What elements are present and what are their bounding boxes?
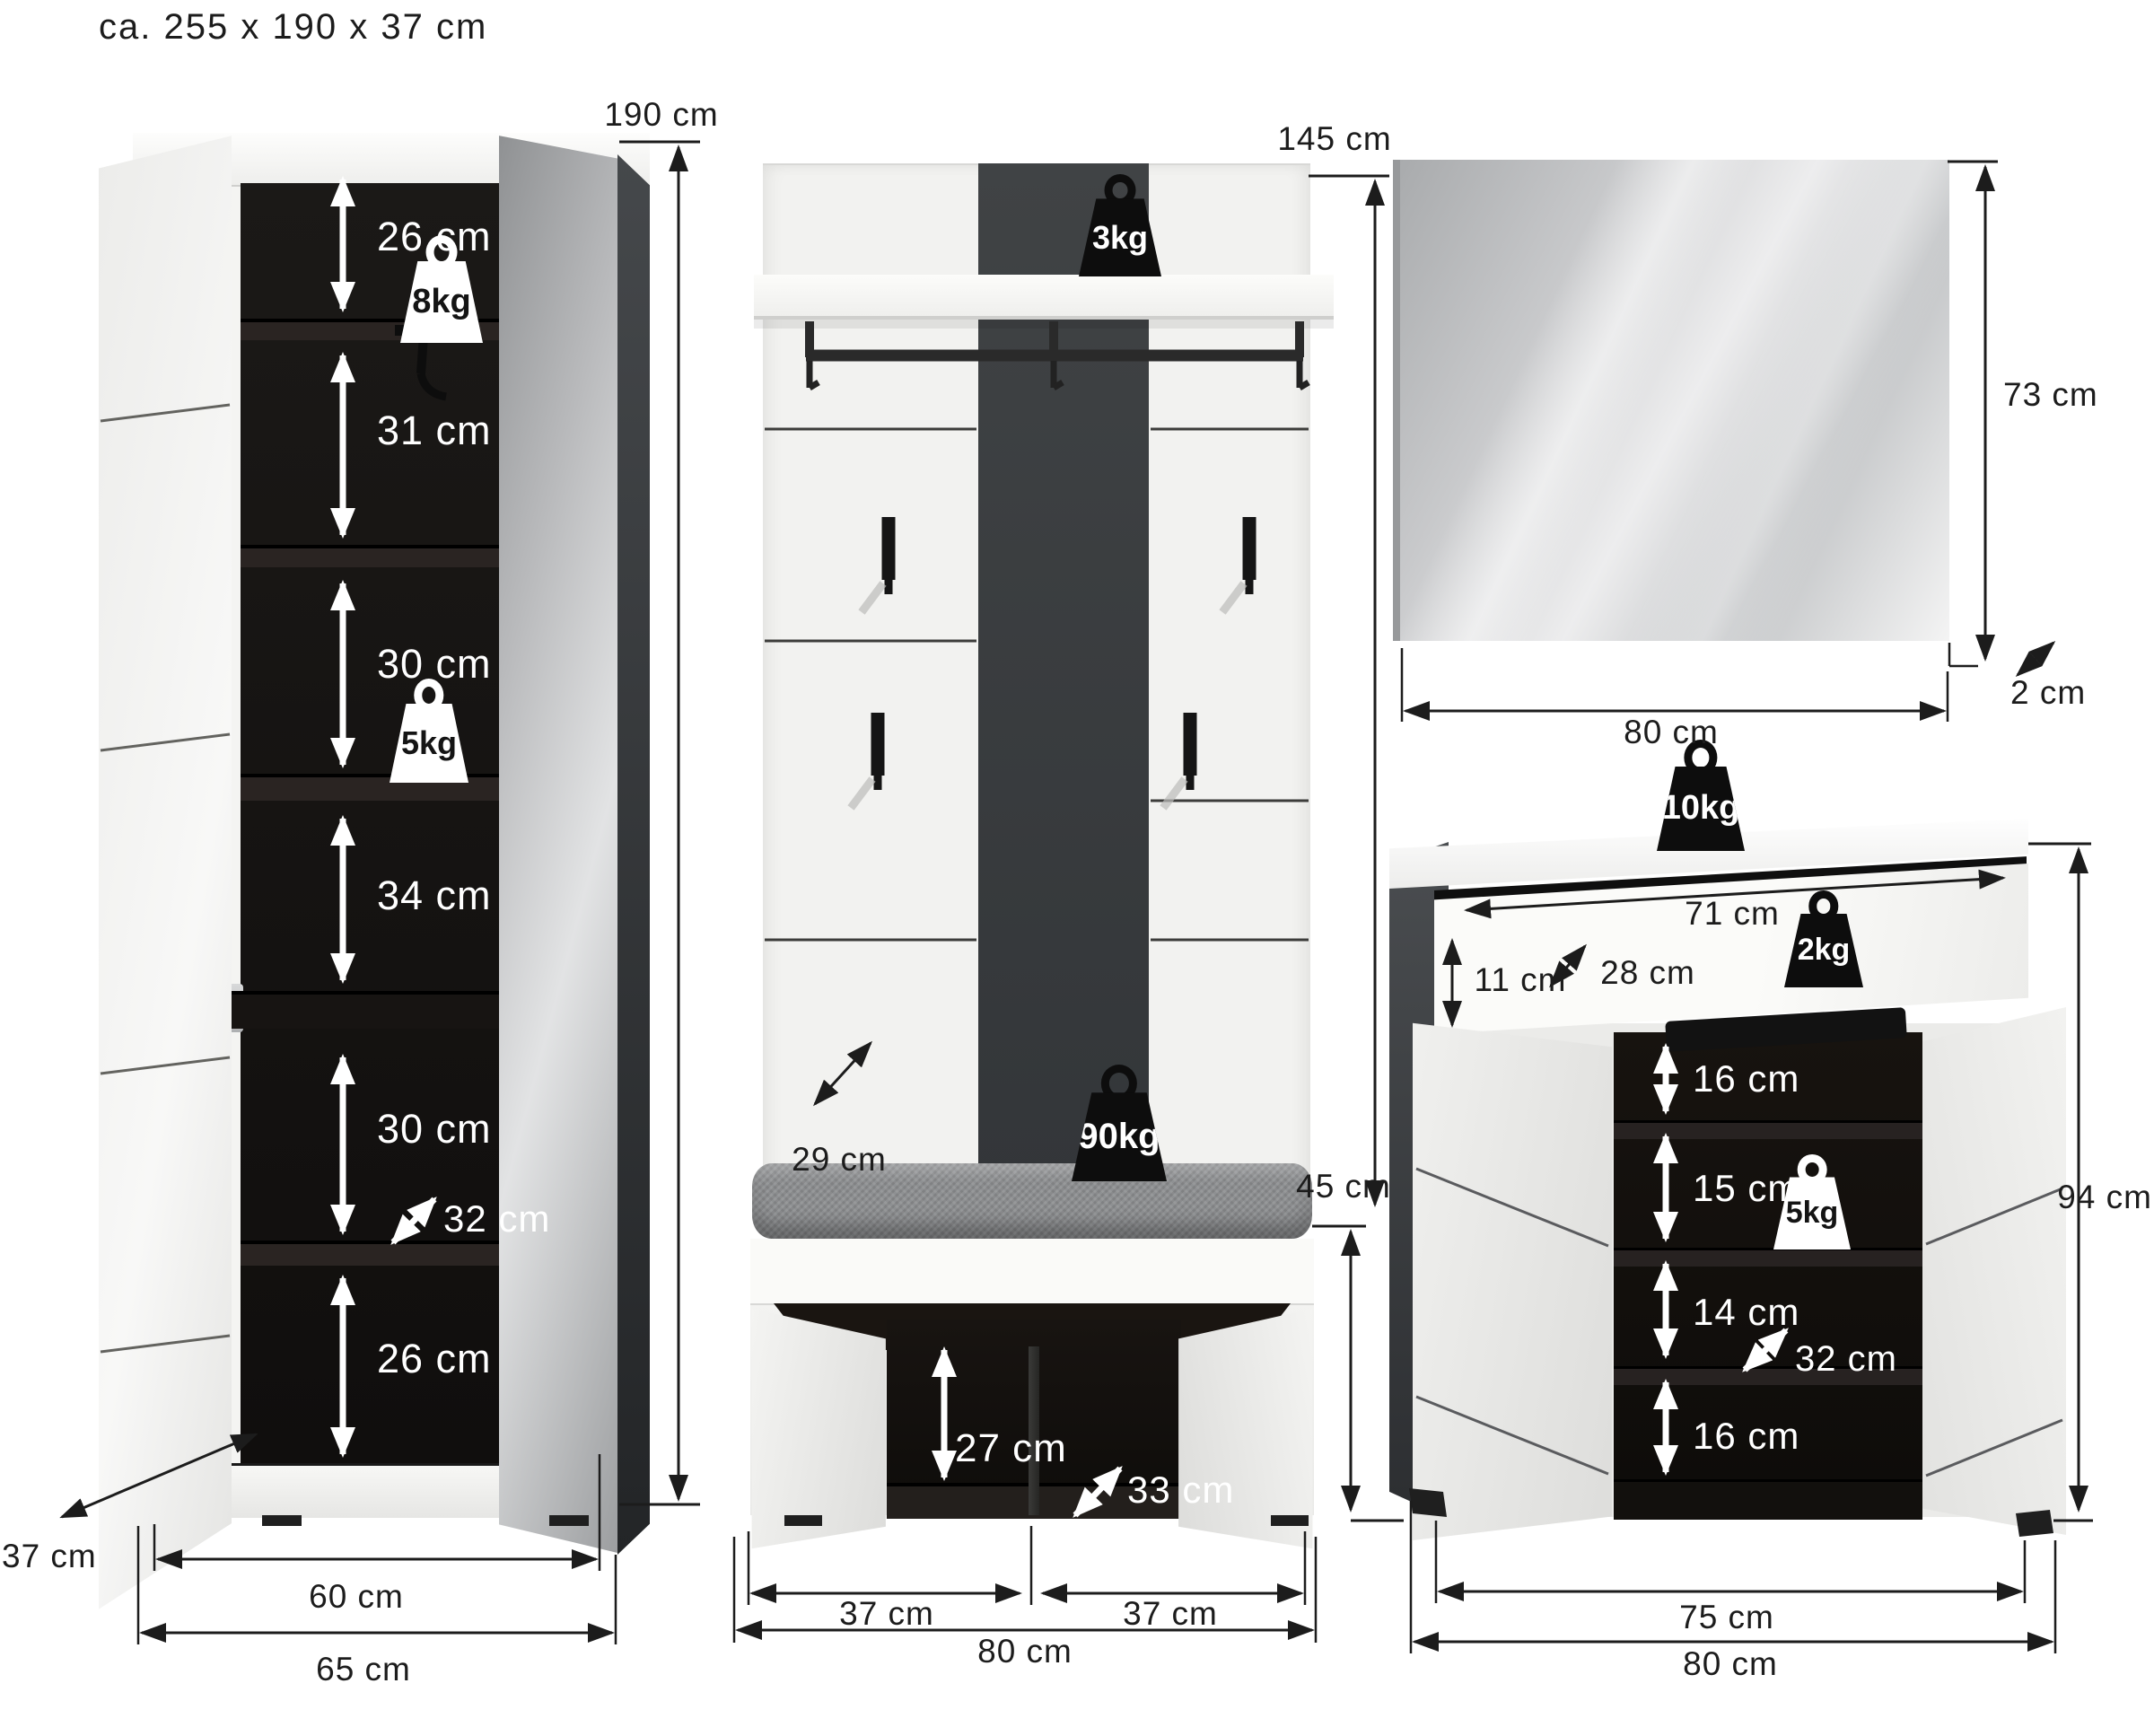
- dim-wardrobe-section-4: 34 cm: [377, 874, 492, 917]
- dim-cabinet-height: 94 cm: [2052, 1178, 2152, 1217]
- dim-drawer-width: 71 cm: [1685, 894, 1780, 934]
- dimension-overlay: [0, 0, 2154, 1736]
- wardrobe-door-seams: [101, 405, 230, 1352]
- dim-cabinet-inner-width: 75 cm: [1679, 1598, 1774, 1637]
- weight-2kg-icon: 2kg: [1784, 890, 1863, 987]
- coatrack-panel-seams: [765, 429, 1309, 940]
- dim-cabinet-shelf-4: 16 cm: [1693, 1415, 1799, 1458]
- weight-label: 2kg: [1798, 933, 1851, 968]
- dim-wardrobe-outer-width: 65 cm: [316, 1650, 411, 1689]
- dim-cabinet-shelf-3: 14 cm: [1693, 1291, 1799, 1334]
- dim-bench-inner-depth: 33 cm: [1127, 1469, 1234, 1512]
- interior-arrows: [343, 180, 1786, 1515]
- dim-bench-height: 45 cm: [1296, 1167, 1391, 1206]
- dim-wardrobe-inner-width: 60 cm: [309, 1577, 404, 1617]
- dim-bench-left-door: 37 cm: [839, 1594, 934, 1634]
- dim-bench-inner-height: 27 cm: [955, 1427, 1067, 1470]
- coat-hooks: [851, 517, 1249, 808]
- dim-wardrobe-depth: 37 cm: [2, 1537, 97, 1576]
- dim-coatrack-height: 145 cm: [1277, 119, 1391, 159]
- dim-mirror-width: 80 cm: [1624, 713, 1719, 752]
- furniture-dimension-diagram: 8kg 5kg 3kg 90kg 10kg 2kg 5kg ca. 255 x …: [0, 0, 2154, 1736]
- dim-drawer-height: 11 cm: [1474, 960, 1566, 1000]
- dim-wardrobe-inner-depth: 32 cm: [443, 1197, 550, 1241]
- dim-cabinet-width: 80 cm: [1683, 1644, 1778, 1684]
- weight-10kg-icon: 10kg: [1657, 740, 1745, 851]
- dim-cabinet-shelf-1: 16 cm: [1693, 1057, 1799, 1100]
- dim-wardrobe-section-3: 30 cm: [377, 643, 492, 686]
- weight-label: 3kg: [1092, 219, 1148, 257]
- dim-mirror-height: 73 cm: [2003, 375, 2098, 415]
- dim-mirror-depth: 2 cm: [2010, 673, 2086, 713]
- dim-wardrobe-section-2: 31 cm: [377, 409, 492, 452]
- dim-wardrobe-section-6: 26 cm: [377, 1337, 492, 1381]
- dim-coatrack-width: 80 cm: [977, 1632, 1073, 1671]
- dim-coatrack-panel-depth: 29 cm: [792, 1140, 887, 1179]
- dim-cabinet-shelf-2: 15 cm: [1693, 1167, 1799, 1210]
- weight-label: 10kg: [1662, 789, 1740, 828]
- dim-wardrobe-section-1: 26 cm: [377, 215, 492, 259]
- dim-cabinet-inner-depth: 32 cm: [1795, 1337, 1897, 1381]
- weight-label: 90kg: [1078, 1117, 1160, 1157]
- dim-drawer-depth: 28 cm: [1600, 953, 1695, 993]
- page-title: ca. 255 x 190 x 37 cm: [99, 7, 487, 47]
- weight-5kg-icon: 5kg: [390, 679, 468, 783]
- coatrack-rail: [806, 321, 1309, 388]
- weight-label: 8kg: [412, 283, 470, 321]
- dim-wardrobe-section-5: 30 cm: [377, 1108, 492, 1151]
- weight-label: 5kg: [401, 724, 457, 762]
- dim-bench-right-door: 37 cm: [1123, 1594, 1218, 1634]
- weight-3kg-icon: 3kg: [1079, 174, 1161, 276]
- dim-wardrobe-height: 190 cm: [604, 95, 718, 135]
- weight-90kg-icon: 90kg: [1072, 1065, 1167, 1181]
